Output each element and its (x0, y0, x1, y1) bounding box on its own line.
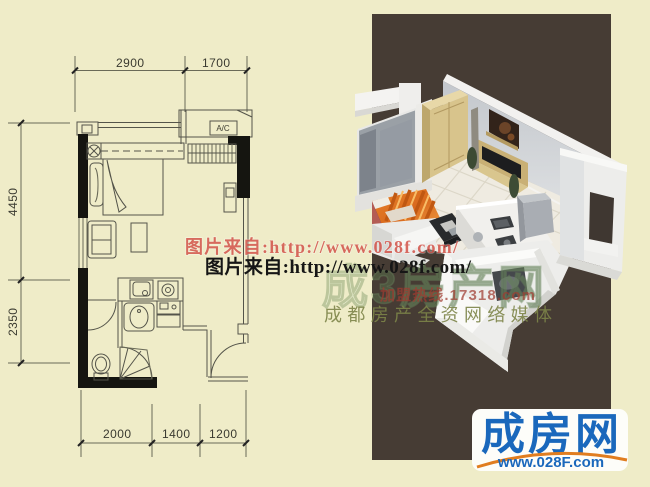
svg-text:1700: 1700 (202, 56, 230, 70)
svg-text:图片来自:http://www.028f.com/: 图片来自:http://www.028f.com/ (185, 236, 459, 257)
svg-text:成房网: 成房网 (481, 410, 619, 459)
svg-text:1200: 1200 (209, 427, 237, 441)
svg-text:2900: 2900 (116, 56, 144, 70)
svg-text:4450: 4450 (6, 188, 20, 216)
svg-text:2000: 2000 (103, 427, 131, 441)
svg-text:图片来自:http://www.028f.com/: 图片来自:http://www.028f.com/ (205, 255, 472, 278)
svg-text:加盟热线.17318.com: 加盟热线.17318.com (379, 286, 535, 304)
svg-text:1400: 1400 (162, 427, 190, 441)
svg-text:www.028F.com: www.028F.com (497, 454, 604, 471)
svg-text:2350: 2350 (6, 308, 20, 336)
svg-text:A/C: A/C (216, 124, 230, 133)
